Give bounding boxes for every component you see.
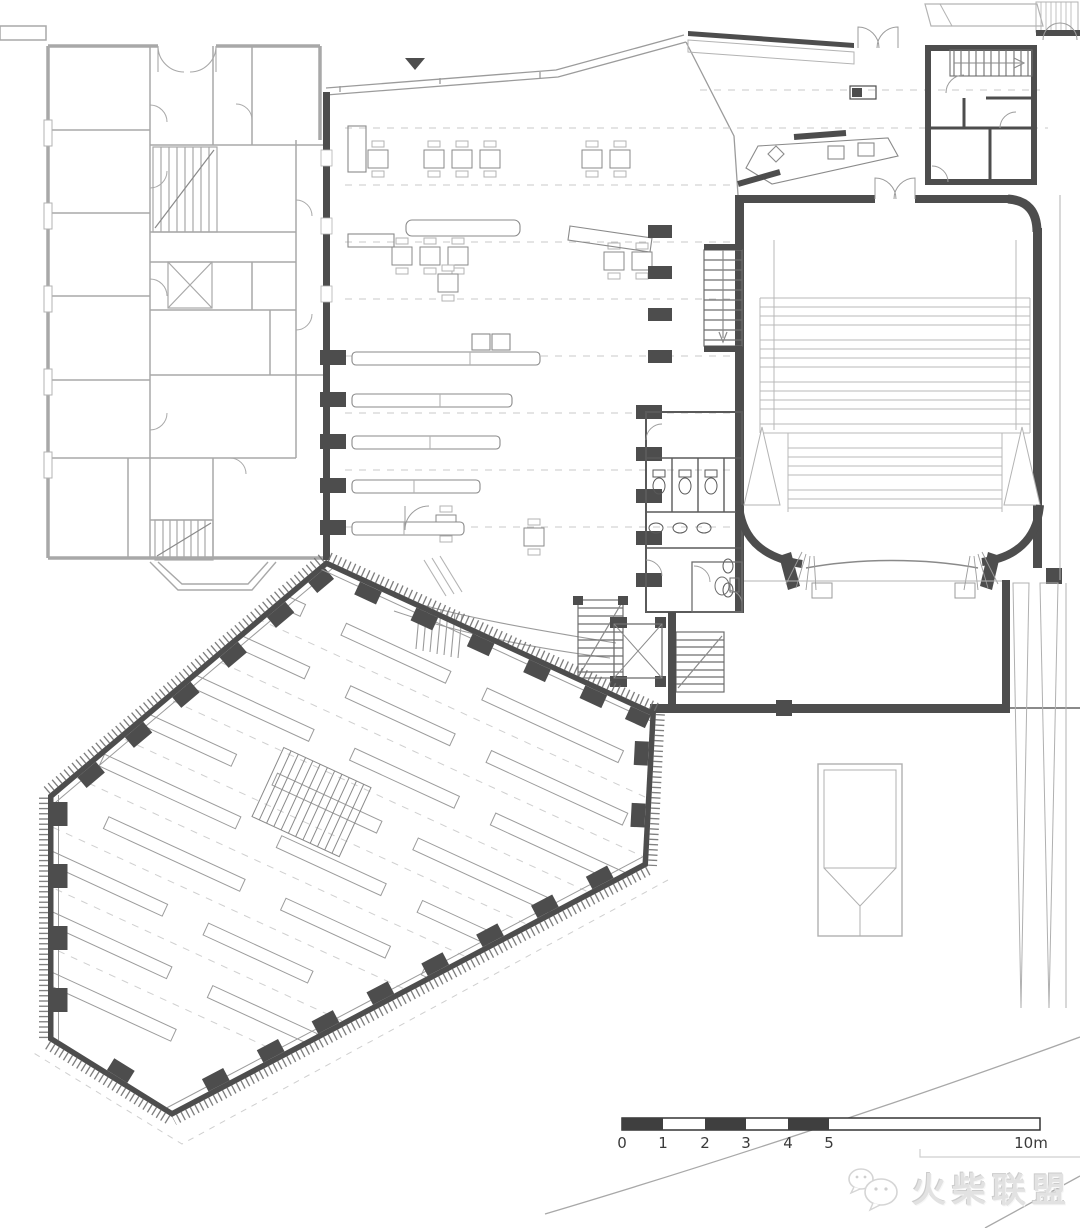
scale-bar-outline [622, 1118, 1040, 1130]
scale-label-0: 0 [617, 1134, 627, 1152]
wing-partitions [48, 46, 330, 558]
auditorium [650, 178, 1080, 716]
floor-plan-canvas: 0 1 2 3 4 5 10m 火柴联盟 [0, 0, 1080, 1228]
scale-segment-4-5 [788, 1118, 829, 1130]
auditorium-door-arcs [875, 178, 915, 199]
scale-label-3: 3 [741, 1134, 751, 1152]
south-wall [650, 704, 1010, 713]
scale-label-2: 2 [700, 1134, 710, 1152]
wing-bay-window [150, 562, 276, 590]
counter-long [406, 220, 520, 236]
wing-stair-upper [153, 147, 217, 232]
adjacent-block [0, 26, 46, 40]
hatched-wall-w3 [628, 711, 665, 866]
scale-segment-0-1 [622, 1118, 663, 1130]
counter-small [348, 234, 394, 247]
block-partitions [928, 98, 1034, 182]
core-wall-west [668, 612, 676, 710]
central-elevator [610, 617, 666, 687]
lower-hall [0, 542, 687, 1192]
ramp-hatch [424, 556, 462, 596]
step-block [252, 748, 371, 857]
floor-plan-drawing: 0 1 2 3 4 5 10m [0, 0, 1080, 1228]
south-wall-block [776, 700, 792, 716]
scale-label-4: 4 [783, 1134, 793, 1152]
top-right-block [925, 2, 1080, 182]
block-canopy [925, 4, 1043, 26]
auditorium-rounded-corner [1008, 199, 1037, 232]
desk-strips [0, 542, 678, 1188]
watermark-text: 火柴联盟 [912, 1163, 1072, 1212]
wing-elevator [168, 262, 212, 308]
watermark: 火柴联盟 [846, 1163, 1072, 1212]
chat-bubbles-icon [846, 1164, 902, 1212]
watermark-frame [920, 1149, 1080, 1157]
existing-wing [0, 26, 330, 590]
stair-b [676, 632, 724, 692]
wing-stair-lower [155, 520, 213, 560]
auditorium-top-wall-left [741, 195, 875, 203]
scale-segment-2-3 [705, 1118, 746, 1130]
understage-east-wall [1002, 580, 1010, 712]
vent-grille [1036, 2, 1080, 36]
info-table [850, 86, 876, 99]
glass-facade [326, 35, 738, 195]
wing-door-arcs [150, 104, 312, 474]
block-walls [928, 48, 1034, 182]
canopy-band [688, 31, 854, 48]
scale-bar: 0 1 2 3 4 5 10m [617, 1118, 1048, 1152]
hatched-wall-w5 [43, 1023, 182, 1124]
scale-label-1: 1 [658, 1134, 668, 1152]
ceiling-dashed-lines [345, 90, 1048, 527]
service-core [573, 195, 744, 710]
stage-stair-fans [786, 552, 998, 590]
reception-counter [738, 133, 898, 184]
pavilion [818, 764, 902, 936]
north-door-arcs [858, 27, 898, 48]
wing-entry-door-arcs [158, 46, 216, 72]
scale-label-10m: 10m [1014, 1134, 1048, 1152]
block-stair [950, 50, 1032, 76]
counter-vertical [348, 126, 366, 172]
scale-label-5: 5 [824, 1134, 834, 1152]
wc-small [692, 562, 742, 612]
entrance-arrow [405, 58, 425, 70]
toilets [653, 470, 717, 494]
entry-hall [320, 27, 1048, 658]
hatched-wall-w1 [42, 553, 338, 810]
seating-rows [760, 240, 1030, 512]
lower-hall-interior [0, 542, 687, 1192]
stage [739, 505, 1062, 590]
wing-outer-walls [48, 46, 330, 558]
stage-front-line [806, 561, 978, 569]
auditorium-top-wall-right [915, 195, 1010, 203]
